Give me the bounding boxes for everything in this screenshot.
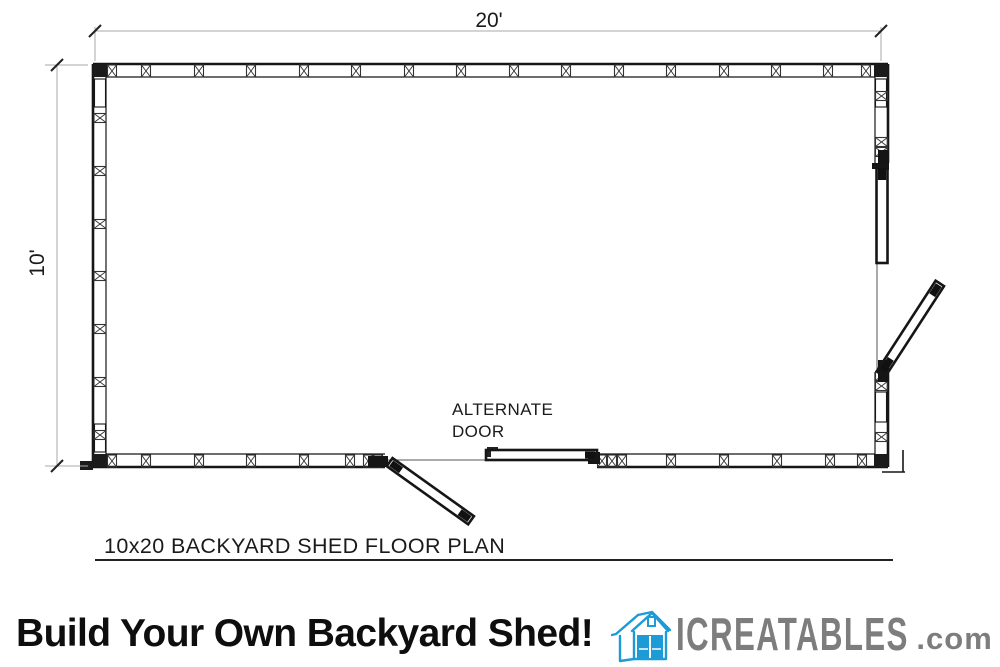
shed-icon <box>608 605 672 663</box>
page: 20' 10' ALTERNATE DOOR 10x20 BACKYARD SH… <box>0 0 1000 667</box>
alternate-door-label-line1: ALTERNATE <box>452 400 553 419</box>
plan-geometry <box>45 25 944 560</box>
plan-title: 10x20 BACKYARD SHED FLOOR PLAN <box>104 534 505 558</box>
footer-banner: Build Your Own Backyard Shed! ICREATABLE… <box>0 600 1000 667</box>
brand-name: ICREATABLES <box>676 607 909 661</box>
floor-plan-area: 20' 10' ALTERNATE DOOR 10x20 BACKYARD SH… <box>0 0 1000 600</box>
alternate-door-label-line2: DOOR <box>452 422 505 441</box>
width-dimension-label: 20' <box>475 9 502 32</box>
floor-plan-canvas: 20' 10' ALTERNATE DOOR 10x20 BACKYARD SH… <box>0 0 1000 600</box>
banner-headline: Build Your Own Backyard Shed! <box>16 612 593 656</box>
brand-logo[interactable]: ICREATABLES .com <box>608 605 993 663</box>
height-dimension-label: 10' <box>26 249 49 276</box>
brand-suffix: .com <box>916 621 992 663</box>
